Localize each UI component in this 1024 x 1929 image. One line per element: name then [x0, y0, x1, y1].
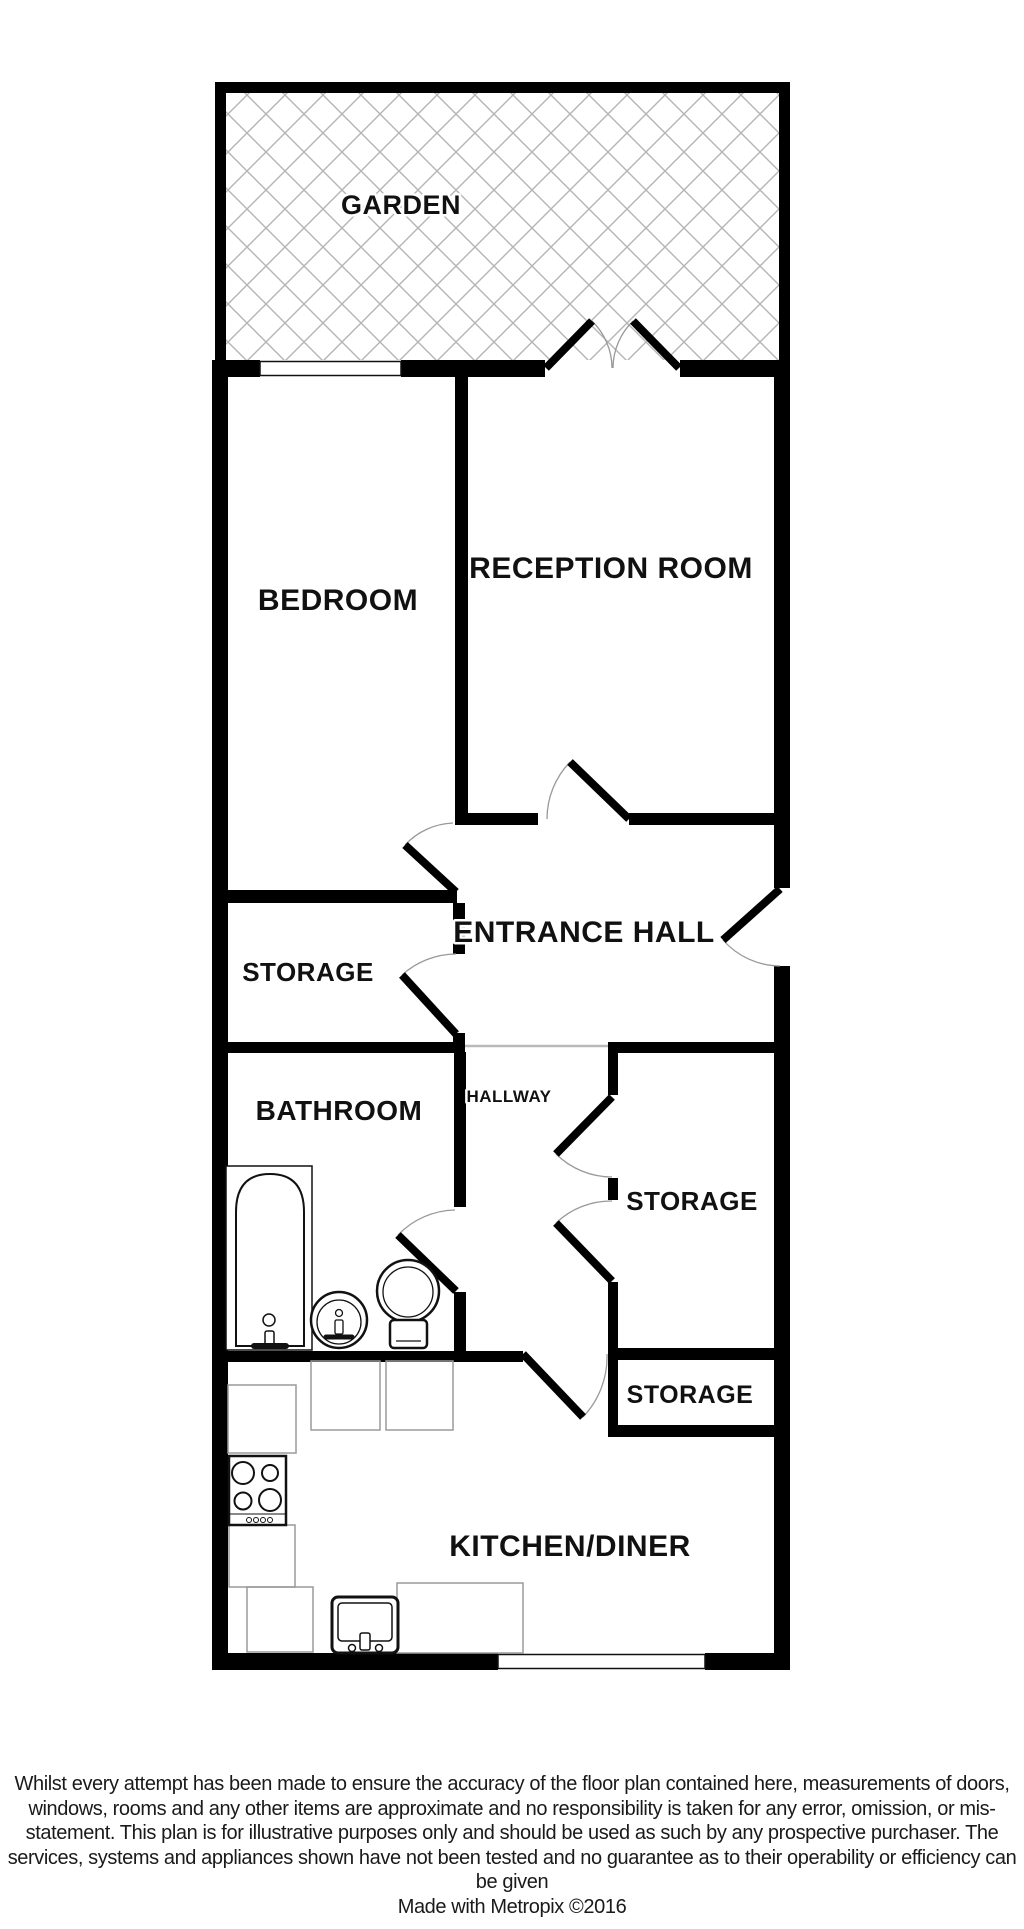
- bedroom-window: [260, 362, 401, 376]
- hob-icon: [229, 1456, 286, 1525]
- door-swing-arc: [556, 1201, 612, 1223]
- floor-plan: GARDEN BEDROOM RECEPTION ROOM ENTRANCE H…: [0, 0, 1024, 1740]
- wall: [228, 1042, 465, 1053]
- wall: [228, 890, 457, 903]
- kitchen-window: [498, 1655, 705, 1669]
- wall: [680, 360, 790, 377]
- bathroom-label: BATHROOM: [256, 1095, 423, 1126]
- reception-room-label: RECEPTION ROOM: [469, 552, 753, 585]
- storage-door-leaf: [556, 1223, 612, 1281]
- garden-wall-right: [779, 82, 790, 370]
- hallway-label: HALLWAY: [466, 1087, 551, 1106]
- pedestal-sink-icon: [311, 1292, 367, 1348]
- wall: [454, 1292, 466, 1352]
- bathtub-icon: [226, 1166, 312, 1350]
- wall: [608, 1425, 774, 1437]
- kitchen-sink-icon: [332, 1597, 398, 1653]
- attribution-text: Made with Metropix ©2016: [0, 1895, 1024, 1920]
- storage-door-leaf: [556, 1097, 612, 1154]
- wall: [455, 813, 538, 825]
- wall: [454, 1052, 466, 1207]
- toilet-icon: [377, 1260, 439, 1348]
- storage-middle-label: STORAGE: [626, 1186, 758, 1216]
- garden-wall-left: [215, 82, 226, 370]
- wall: [212, 360, 228, 1670]
- reception-door-leaf: [570, 762, 629, 819]
- bedroom-label: BEDROOM: [258, 584, 418, 617]
- wall: [705, 1653, 790, 1670]
- wall: [608, 1042, 774, 1053]
- door-swing-arc: [405, 823, 453, 845]
- door-swing-arc: [556, 1154, 612, 1177]
- front-door-leaf: [723, 889, 780, 940]
- kitchen-diner-label: KITCHEN/DINER: [449, 1530, 691, 1563]
- door-swing-arc: [402, 954, 456, 975]
- wall: [629, 813, 774, 825]
- storage-door-leaf: [402, 975, 456, 1034]
- wall: [608, 1178, 618, 1200]
- disclaimer-text: Whilst every attempt has been made to en…: [6, 1772, 1018, 1895]
- floor-plan-page: GARDEN BEDROOM RECEPTION ROOM ENTRANCE H…: [0, 0, 1024, 1929]
- garden-hatch: [225, 93, 779, 360]
- wall: [774, 360, 790, 888]
- wall: [608, 1348, 774, 1360]
- wall: [455, 377, 468, 823]
- door-swing-arc: [547, 762, 570, 819]
- wall: [401, 360, 545, 377]
- door-swing-arc: [398, 1210, 455, 1235]
- wall: [212, 1653, 498, 1670]
- garden-label: GARDEN: [341, 190, 461, 220]
- wall: [774, 966, 790, 1670]
- door-swing-arc: [583, 1354, 607, 1417]
- storage-lower-label: STORAGE: [627, 1381, 754, 1409]
- bedroom-door-leaf: [405, 845, 456, 892]
- footer: Whilst every attempt has been made to en…: [0, 1772, 1024, 1919]
- door-swing-arc: [723, 940, 780, 966]
- wall: [608, 1348, 618, 1437]
- wall: [608, 1042, 618, 1095]
- storage-upper-label: STORAGE: [242, 957, 374, 987]
- kitchen-door-leaf: [523, 1354, 583, 1417]
- entrance-hall-label: ENTRANCE HALL: [453, 916, 715, 949]
- garden-wall-top: [215, 82, 790, 93]
